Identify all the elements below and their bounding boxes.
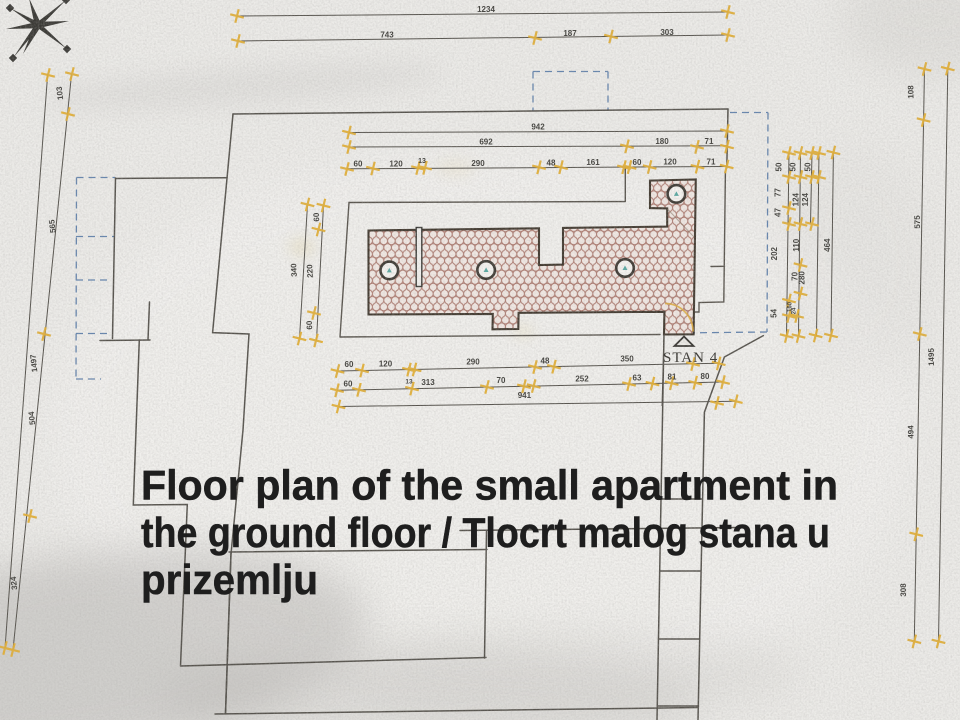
svg-text:the ground floor / Tlocrt malo: the ground floor / Tlocrt malog stana u [141, 509, 830, 556]
svg-text:prizemlju: prizemlju [141, 556, 318, 603]
svg-text:Floor plan of the small apartm: Floor plan of the small apartment in [141, 462, 838, 509]
